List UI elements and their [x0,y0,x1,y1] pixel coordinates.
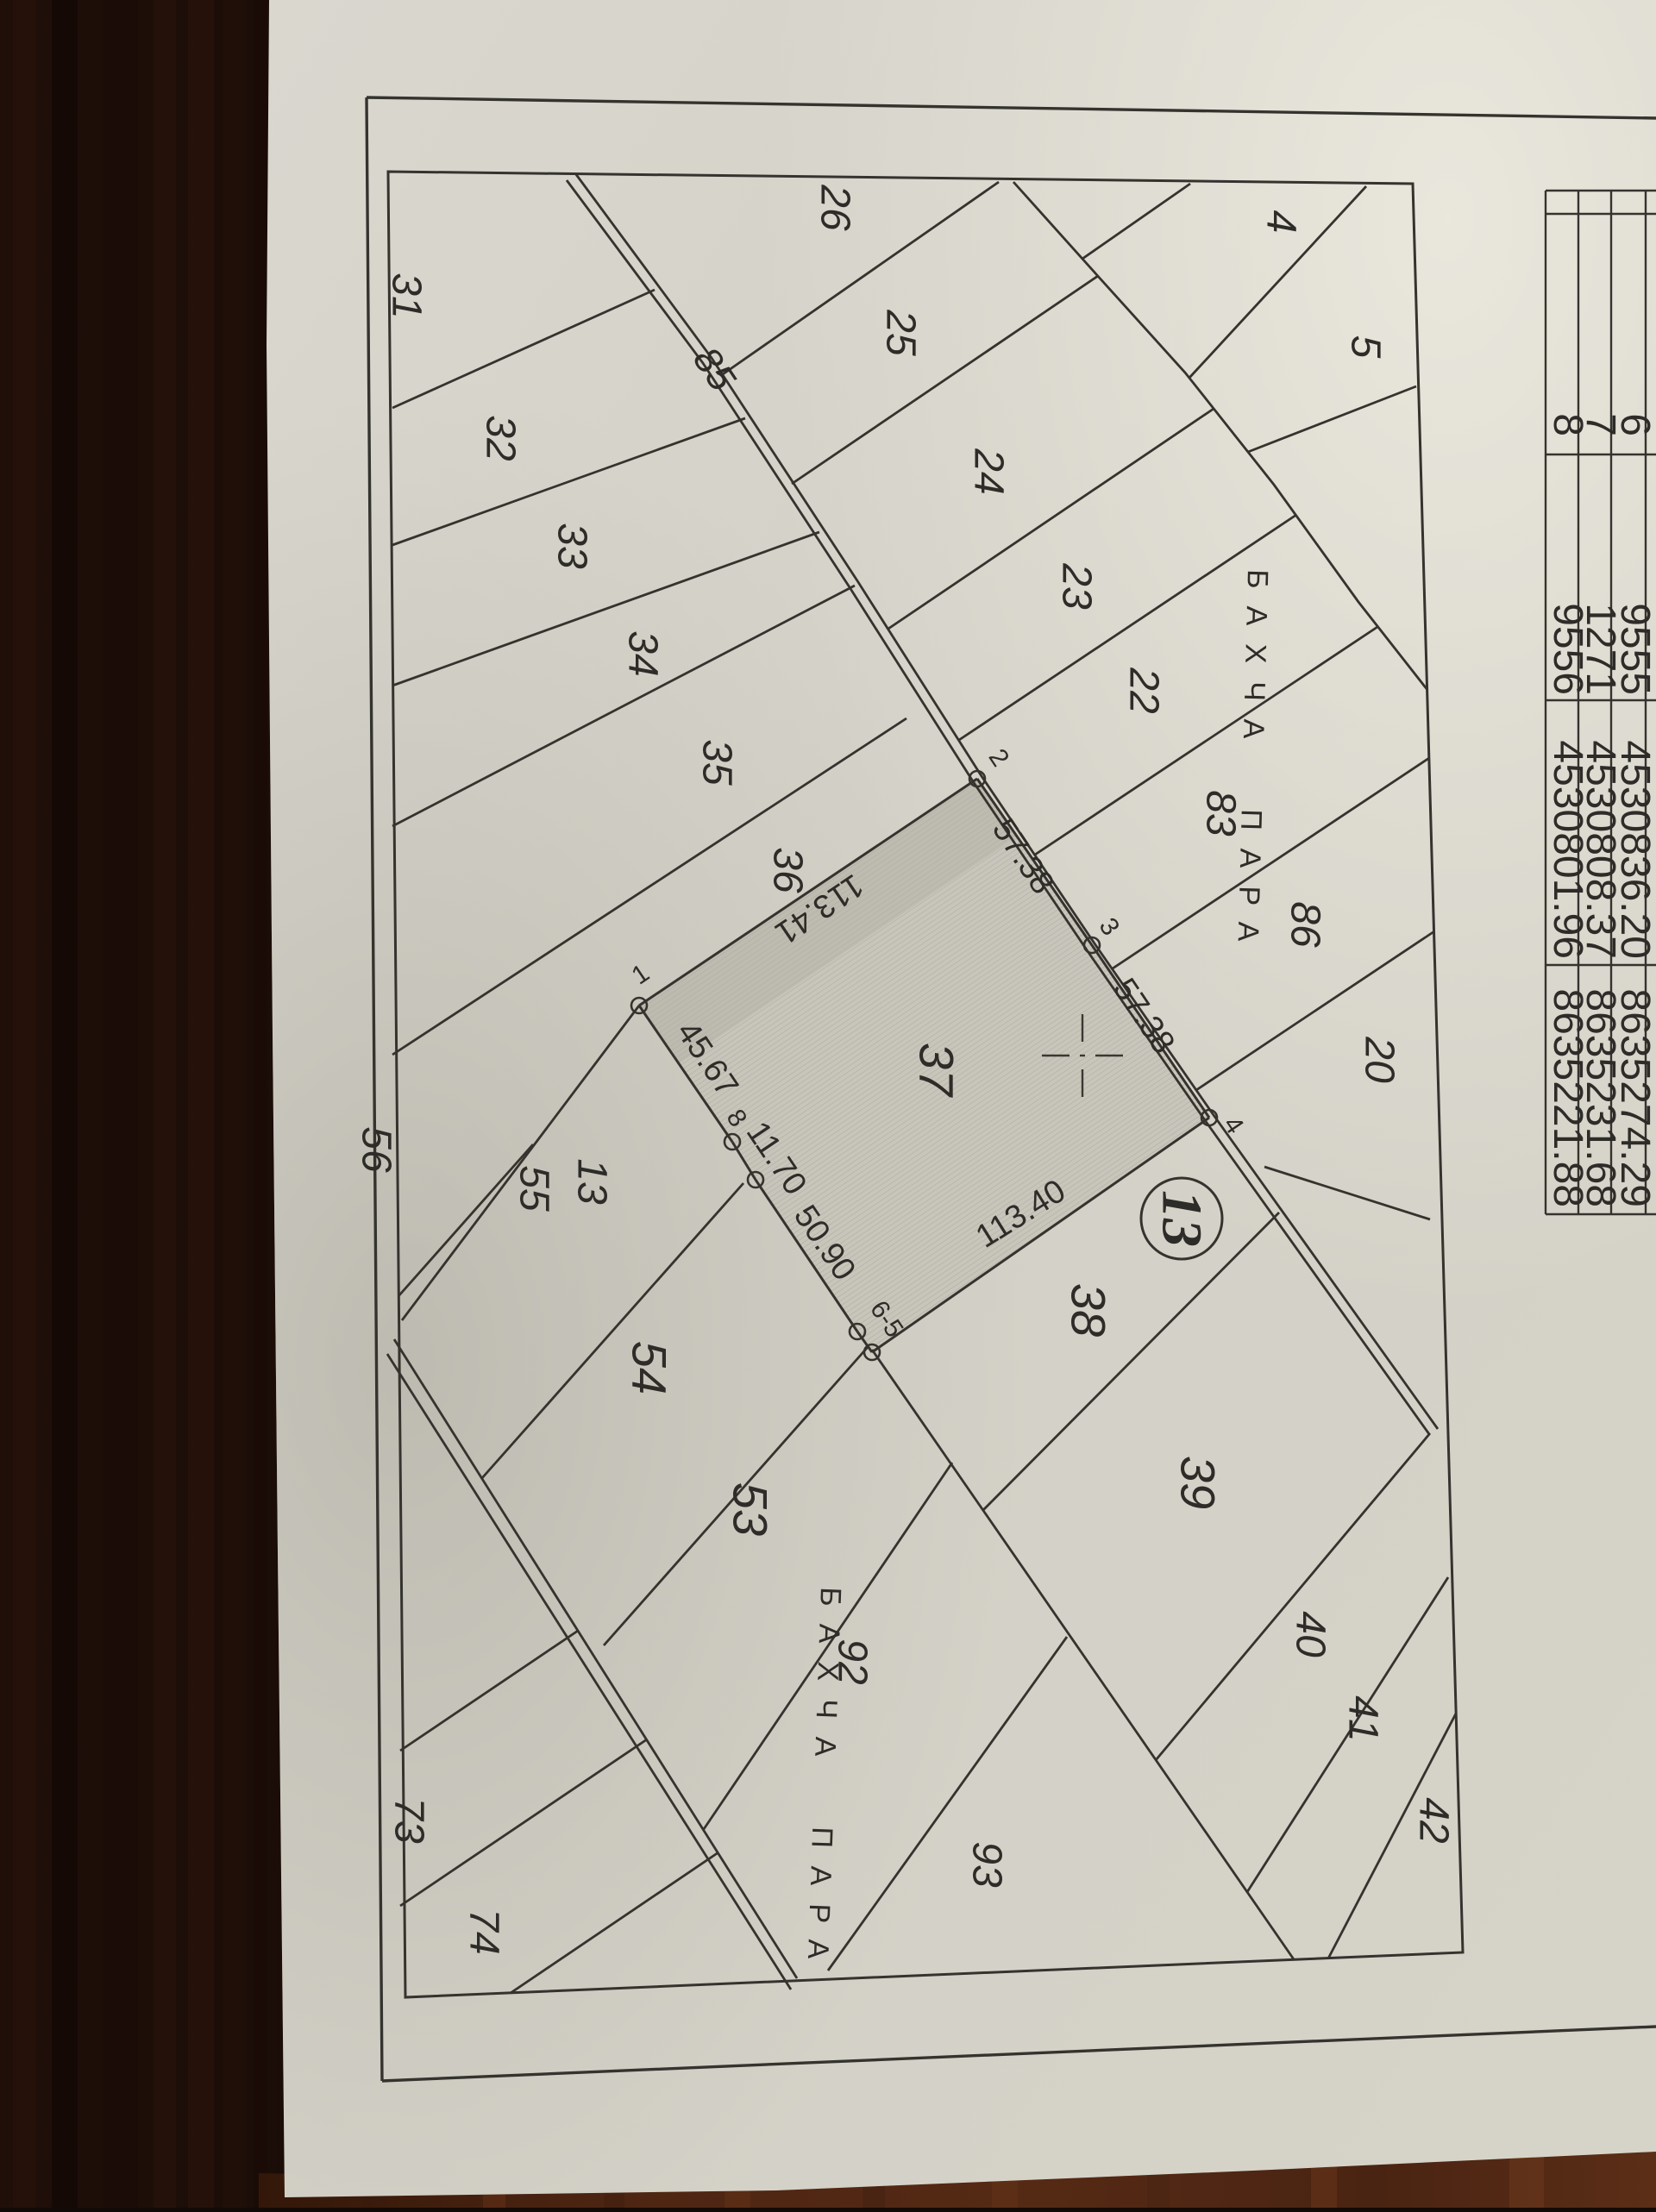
svg-text:20: 20 [1357,1036,1402,1083]
svg-text:4: 4 [1258,210,1304,234]
svg-text:93: 93 [964,1841,1010,1888]
svg-text:33: 33 [549,523,595,569]
svg-text:74: 74 [461,1908,507,1954]
svg-text:9556: 9556 [1545,603,1590,695]
svg-text:32: 32 [478,415,524,461]
svg-text:23: 23 [1054,562,1100,610]
svg-text:13: 13 [1151,1190,1214,1247]
svg-text:26: 26 [812,184,858,231]
svg-text:31: 31 [384,273,430,318]
svg-text:41: 41 [1340,1695,1386,1741]
svg-text:5: 5 [1343,335,1389,359]
svg-text:53: 53 [724,1482,778,1536]
svg-text:73: 73 [386,1797,432,1844]
svg-text:40: 40 [1288,1611,1333,1657]
svg-text:39: 39 [1171,1456,1226,1509]
svg-text:42: 42 [1411,1797,1457,1843]
svg-text:54: 54 [623,1341,677,1394]
svg-text:24: 24 [966,448,1012,494]
svg-text:35: 35 [694,739,740,786]
svg-text:8: 8 [1545,413,1590,436]
svg-text:38: 38 [1062,1283,1116,1337]
svg-text:4530801.96: 4530801.96 [1545,740,1590,959]
svg-text:25: 25 [878,309,924,356]
svg-text:56: 56 [354,1126,399,1173]
svg-text:8635221.88: 8635221.88 [1545,988,1590,1207]
svg-text:22: 22 [1121,667,1167,713]
svg-text:13: 13 [569,1158,615,1205]
svg-text:34: 34 [620,630,666,676]
svg-text:86: 86 [1283,901,1328,948]
svg-text:37: 37 [910,1043,964,1098]
svg-text:55: 55 [511,1165,557,1212]
svg-text:36: 36 [765,847,811,893]
